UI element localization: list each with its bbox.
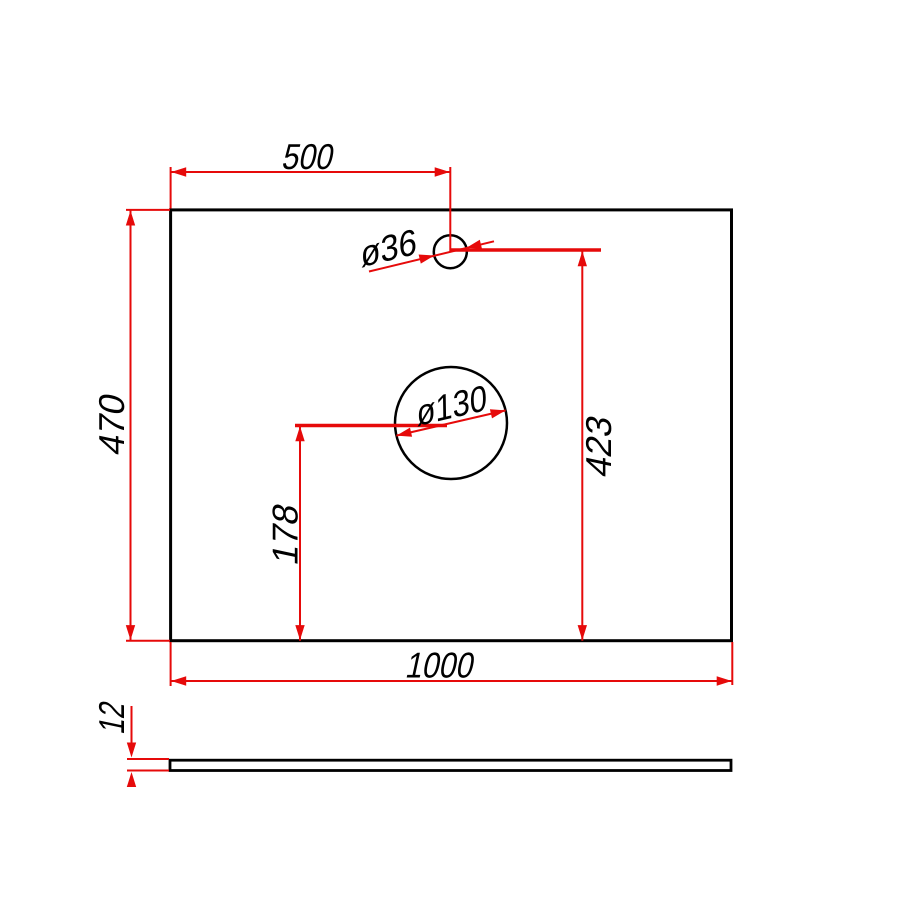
svg-text:470: 470 <box>91 390 132 459</box>
svg-text:500: 500 <box>279 138 338 178</box>
svg-text:12: 12 <box>91 697 132 737</box>
svg-text:1000: 1000 <box>403 647 479 687</box>
svg-text:423: 423 <box>578 412 619 481</box>
svg-text:178: 178 <box>265 500 306 569</box>
svg-text:ø36: ø36 <box>360 221 417 275</box>
svg-text:ø130: ø130 <box>416 378 487 435</box>
